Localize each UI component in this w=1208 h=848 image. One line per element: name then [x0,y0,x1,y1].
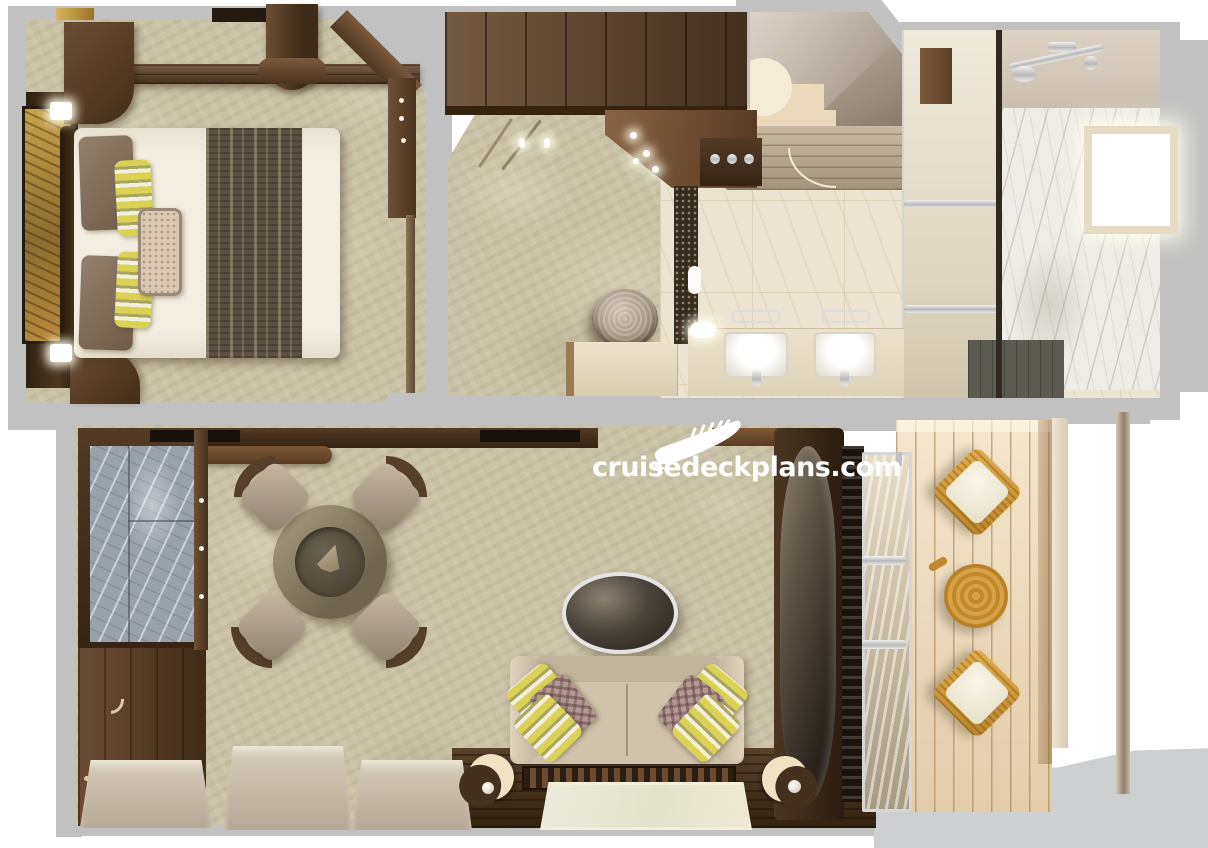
balcony-side-wall [1052,418,1068,748]
shower-shelf [920,48,952,104]
hanger-hook [519,138,525,148]
wall-sconce [50,344,72,362]
bar-knob [199,546,204,551]
faucet-glyph [727,154,737,164]
sliding-glass-door [862,452,912,812]
desk-knob [399,116,404,121]
bathroom-window [1084,126,1178,234]
wall-sconce [50,102,72,120]
sofa-seat-seam [626,684,628,756]
art-rug-panel [540,782,752,830]
door-handle [688,266,701,294]
door-rail [862,640,906,649]
bed-runner [206,128,302,358]
entry-hall [750,12,906,130]
tv-slat-strip [842,446,864,802]
marble-seam [128,446,130,642]
towel-bar [822,310,870,323]
suite-floor-plan: cruisedeckplans.com [0,0,1208,848]
dining-chair [233,455,317,539]
bedroom-shelf-brass [56,8,94,20]
bench-trim [566,342,574,396]
bedroom-closet-opening [212,8,270,22]
faucet-glyph [710,154,720,164]
marble-seam [128,520,194,522]
downlight [633,158,639,164]
nightstand-top [64,22,134,124]
bar-knob [199,594,204,599]
dining-chair [344,455,428,539]
desk-knob [399,98,404,103]
deck-right-shade [1038,420,1052,764]
shower-control [1084,56,1098,70]
band-inset [480,430,580,442]
glass-rail [904,200,1000,208]
glass-rail [904,305,1000,313]
downlight [652,166,659,173]
downlight [630,132,637,139]
deck-top-edge [896,420,1052,432]
slate-shower-floor [968,340,1064,398]
oval-coffee-table [562,572,678,654]
desk-knob [401,138,406,143]
sink-faucet [752,370,761,386]
bedroom-column-collar [258,58,326,84]
dining-chair [344,585,428,669]
sink-faucet [840,370,849,386]
bar-wood-edge [194,430,208,650]
dressing-bench [574,342,678,396]
bedroom-side-trim [406,215,415,393]
glass-partition-frame [996,30,1002,398]
hanger-hook [544,138,550,148]
round-ottoman [592,289,658,349]
partition-pole [1116,412,1130,794]
wicker-side-table [944,564,1008,628]
downlight [643,150,650,157]
dining-chair [230,585,314,669]
pillow-lumbar-patterned [138,208,182,296]
bar-counter-marble [90,446,194,642]
door-rail [862,556,906,565]
curved-tv-panel-glass [780,446,836,802]
vanity-wall-light [690,322,716,338]
dressing-wardrobe [445,12,747,112]
faucet-glyph [744,154,754,164]
curtain-panel [352,760,472,830]
bar-knob [199,498,204,503]
shower-head [1012,66,1036,82]
curtain-panel [224,746,352,830]
towel-bar [732,310,780,323]
shower-slider [1048,42,1076,52]
watermark-text: cruisedeckplans.com [592,452,798,482]
lamp-ornament [788,780,801,793]
mosaic-strip [674,186,698,344]
curtain-panel [80,760,212,828]
lamp-ornament [482,782,494,794]
